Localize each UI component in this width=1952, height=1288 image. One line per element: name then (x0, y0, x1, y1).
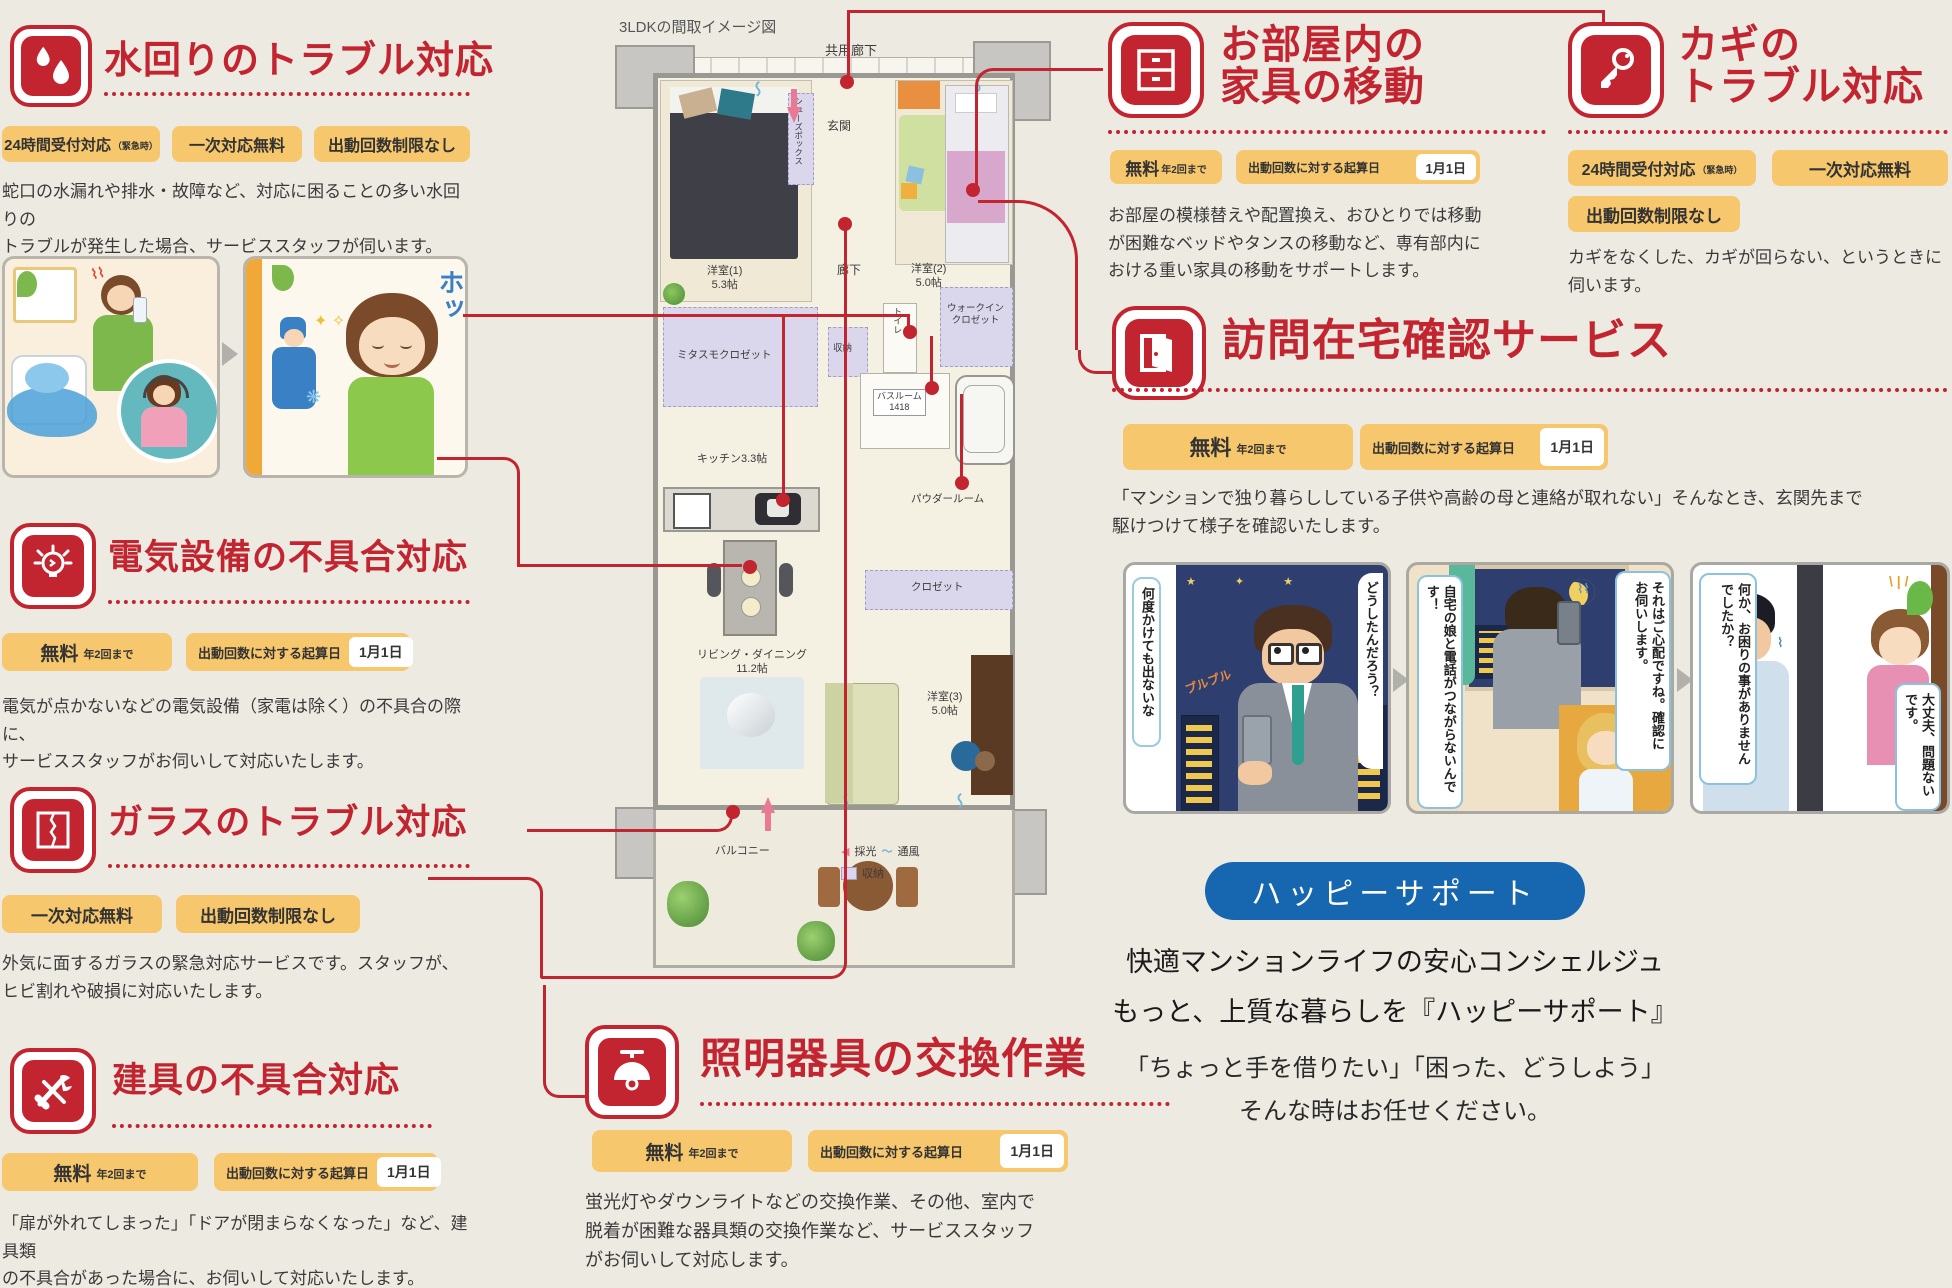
comic3-speech-right: 大丈夫、問題ないです。 (1895, 683, 1941, 811)
plan-dot-dining (743, 560, 757, 574)
furniture-divider (1108, 130, 1546, 134)
connector-visit-elbow (1078, 350, 1112, 374)
plan-dot-toilet (903, 325, 917, 339)
floor-plan-title: 3LDKの間取イメージ図 (619, 19, 776, 38)
water-badge-free: 一次対応無料 (172, 126, 302, 162)
wind-legend-icon: 〜 (881, 843, 892, 859)
key-desc: カギをなくした、カギが回らない、というときに伺います。 (1568, 244, 1952, 299)
wind-mark: 〜 (743, 81, 767, 97)
plan-dot-kitchen-sink (776, 493, 790, 507)
fp-label-closet: クロゼット (911, 581, 964, 594)
fp-label-mitasumo: ミタスモクロゼット (677, 349, 772, 362)
fp-label-room1: 洋室(1)5.3帖 (707, 265, 742, 293)
key-badge-free: 一次対応無料 (1772, 150, 1948, 186)
connector-furniture (975, 68, 1103, 186)
water-desc: 蛇口の水漏れや排水・故障など、対応に困ることの多い水回りのトラブルが発生した場合… (2, 178, 472, 261)
lighting-icon (585, 1025, 679, 1119)
light-arrow-up (761, 797, 775, 813)
connector-key-drop (847, 10, 850, 76)
comic2-speech-left: 自宅の娘と電話がつながらないんです！ (1417, 575, 1463, 809)
leaf-shape (17, 271, 37, 297)
toy-block-yellow (901, 183, 917, 199)
glasses-left (1268, 643, 1294, 665)
water-trouble-illustration: ⌇⌇ (2, 256, 220, 478)
comic1-thought-bubble: 何度かけても出ないな (1132, 577, 1161, 747)
hand (1238, 761, 1272, 785)
wall-strip (246, 259, 262, 475)
water-badge-24h: 24時間受付対応（緊急時） (2, 126, 160, 162)
glass-icon (10, 787, 96, 873)
stars: ★ ✦ ★ (1186, 575, 1311, 588)
electric-divider (108, 600, 470, 604)
stool (975, 751, 995, 771)
connector-electric (520, 564, 742, 567)
comic-panel-1: ★ ✦ ★ プルプル 何度かけても出ないな どうしたんだろう？ (1123, 562, 1391, 814)
plan-dot-bed (966, 183, 980, 197)
talk-marks: ⌇⌇ (1577, 581, 1590, 597)
between-images-arrow (222, 342, 238, 366)
connector-trunk-vertical (830, 230, 847, 979)
phone-at-ear (1557, 601, 1581, 645)
eye (1302, 647, 1309, 654)
wind-mark: 〜 (945, 793, 969, 809)
key-icon (1568, 22, 1664, 118)
woman-face (107, 285, 135, 311)
comic3-speech-left: 何か、お困りの事がありませんでしたか？ (1699, 573, 1757, 785)
fp-label-living: リビング・ダイニング11.2帖 (697, 649, 807, 677)
fittings-divider (112, 1124, 432, 1128)
fittings-icon (10, 1048, 96, 1134)
light-arrow-down (787, 107, 801, 123)
glass-badge-free: 一次対応無料 (2, 895, 162, 933)
fp-label-kitchen: キッチン3.3帖 (697, 453, 767, 467)
plant (663, 283, 685, 305)
smartphone (1242, 715, 1272, 765)
lighting-desc: 蛍光灯やダウンライトなどの交換作業、その他、室内で脱着が困難な器具類の交換作業な… (585, 1188, 1105, 1275)
water-title: 水回りのトラブル対応 (104, 42, 494, 82)
visit-badge-date: 出動回数に対する起算日 1月1日 (1360, 424, 1608, 470)
plant-leaf (1907, 581, 1933, 615)
bathtub-inner (963, 385, 1005, 453)
visit-icon (1112, 306, 1206, 400)
plan-dot-entrance (840, 75, 854, 89)
water-divider (104, 92, 470, 96)
water-icon (10, 25, 92, 107)
toy-block-blue (906, 166, 925, 185)
alarm-marks: ⌇⌇ (89, 264, 106, 283)
plan-legend: ◀ 採光 〜 通風 収納 (841, 843, 919, 881)
operator-body (141, 407, 187, 447)
chair-right (779, 563, 793, 597)
legend-row-1: ◀ 採光 〜 通風 (841, 843, 919, 859)
repairman-face (284, 329, 304, 347)
electric-title: 電気設備の不具合対応 (108, 540, 468, 577)
key-title: カギの トラブル対応 (1678, 24, 1924, 108)
key-divider (1568, 130, 1948, 134)
key-badge-24h: 24時間受付対応（緊急時） (1568, 150, 1756, 186)
visit-badge-free: 無料年2回まで (1123, 424, 1353, 470)
glass-desc: 外気に面するガラスの緊急対応サービスです。スタッフが、ヒビ割れや破損に対応いたし… (2, 950, 472, 1005)
toilet-water (25, 363, 69, 393)
plan-dot-bathroom (925, 381, 939, 395)
sparkle-marks: ✦ ✧ (314, 311, 345, 331)
fp-label-powder: パウダールーム (911, 493, 984, 506)
fp-label-toilet: トイレ (891, 307, 902, 334)
plan-dot-balcony-glass (726, 805, 740, 819)
comic2-speech-right: それはご心配ですね。確認にお伺いします。 (1615, 571, 1671, 771)
visit-desc: 「マンションで独り暮らししている子供や高齢の母と連絡が取れない」そんなとき、玄関… (1112, 484, 1952, 541)
comic1-speech-bubble: どうしたんだろう？ (1358, 573, 1383, 769)
furniture-badge-date: 出動回数に対する起算日 1月1日 (1236, 150, 1480, 184)
dining-table (723, 540, 777, 636)
resident-face (1879, 627, 1921, 665)
happy-support-copy: 快適マンションライフの安心コンシェルジュ もっと、上質な暮らしを『ハッピーサポー… (1020, 938, 1770, 1038)
electric-badge-date: 出動回数に対する起算日 1月1日 (186, 633, 410, 671)
closed-eye-right (400, 341, 412, 349)
legend-light-label: 採光 (854, 843, 876, 859)
relieved-woman-body (348, 377, 434, 475)
connector-visit-curve (978, 200, 1078, 350)
comic-panel-3: \ | / ⌇ 何か、お困りの事がありませんでしたか？ 大丈夫、問題ないです。 (1690, 562, 1950, 814)
furniture-badge-free: 無料年2回まで (1110, 150, 1222, 184)
surprise-marks: \ | / (1889, 573, 1908, 589)
happy-support-note: 「ちょっと手を借りたい」「困った、どうしよう」 そんな時はお任せください。 (1020, 1048, 1770, 1134)
fp-label-bathroom: バスルーム1418 (873, 389, 926, 416)
infographic-page: 水回りのトラブル対応 24時間受付対応（緊急時） 一次対応無料 出動回数制限なし… (0, 0, 1952, 1288)
lighting-badge-free: 無料年2回まで (592, 1130, 792, 1172)
key-badge-nolimit: 出動回数制限なし (1568, 196, 1740, 232)
legend-row-2: 収納 (841, 865, 919, 881)
comic-panel-2: ⌇⌇ 自宅の娘と電話がつながらないんです！ それはご心配ですね。確認にお伺いしま… (1406, 562, 1674, 814)
water-badge-nolimit: 出動回数制限なし (314, 126, 470, 162)
furniture-title: お部屋内の 家具の移動 (1220, 24, 1425, 108)
closed-eye-left (372, 341, 384, 349)
visit-divider (1112, 388, 1948, 392)
fp-label-entrance: 玄関 (827, 119, 851, 134)
electric-icon (10, 523, 96, 609)
balcony-plant (667, 881, 709, 927)
legend-storage-label: 収納 (862, 865, 884, 881)
fp-label-room3: 洋室(3)5.0帖 (927, 691, 962, 719)
fittings-desc: 「扉が外れてしまった」「ドアが閉まらなくなった」など、建具類の不具合があった場合… (2, 1210, 472, 1288)
desk (971, 655, 1013, 795)
connector-key (847, 10, 1605, 13)
plan-dot-corridor-door (838, 217, 852, 231)
eye (1274, 647, 1281, 654)
connector-glass (527, 812, 733, 832)
sigh-marks: ❋ (306, 387, 321, 408)
furniture-icon (1108, 22, 1204, 118)
girl-body (1579, 769, 1633, 814)
connector-fittings (428, 877, 543, 978)
lighting-badge-date: 出動回数に対する起算日 1月1日 (808, 1130, 1068, 1172)
light-arrow-stem (765, 813, 771, 831)
glass-title: ガラスのトラブル対応 (108, 805, 467, 842)
fittings-badge-date: 出動回数に対する起算日 1月1日 (214, 1153, 438, 1191)
man-tie (1292, 685, 1304, 765)
stove (673, 493, 711, 529)
electric-badge-free: 無料年2回まで (2, 633, 172, 671)
fp-label-common-corridor: 共用廊下 (825, 43, 877, 59)
connector-key-stem (1602, 10, 1605, 26)
connector-trunk-horizontal (541, 976, 832, 979)
fp-label-balcony: バルコニー (715, 845, 770, 859)
rug-mirror (727, 693, 775, 737)
visit-title: 訪問在宅確認サービス (1222, 318, 1672, 364)
plate (741, 597, 761, 617)
water-relief-illustration: ✦ ✧ ホッ ❋ (243, 256, 468, 478)
glass-divider (108, 864, 470, 868)
speak-marks: ⌇ (1777, 635, 1783, 651)
building-windows (1186, 723, 1212, 803)
connector-electric-elbow (437, 457, 520, 567)
legend-wind-label: 通風 (897, 843, 919, 859)
connector-water-powder (960, 394, 963, 478)
furniture-desc: お部屋の模様替えや配置換え、おひとりでは移動が困難なベッドやタンスの移動など、専… (1108, 202, 1568, 285)
electric-desc: 電気が点かないなどの電気設備（家電は除く）の不具合の際に、サービススタッフがお伺… (2, 693, 472, 776)
fittings-title: 建具の不具合対応 (112, 1063, 400, 1100)
connector-lighting-elbow (543, 985, 585, 1098)
cabinet-orange (898, 81, 940, 109)
connector-water-kitchen (782, 314, 785, 494)
glass-badge-nolimit: 出動回数制限なし (176, 895, 360, 933)
phone-shape (133, 297, 147, 323)
door-frame (1797, 565, 1823, 814)
fittings-badge-free: 無料年2回まで (2, 1153, 198, 1191)
smile-mouth (384, 357, 400, 368)
leaf-shape (272, 265, 294, 291)
light-arrow-stem (791, 89, 797, 109)
plan-dot-powder-room (955, 476, 969, 490)
chair-left (707, 563, 721, 597)
glasses-right (1296, 643, 1322, 665)
connector-water-bath (930, 336, 933, 382)
happy-support-banner: ハッピーサポート (1205, 862, 1585, 920)
